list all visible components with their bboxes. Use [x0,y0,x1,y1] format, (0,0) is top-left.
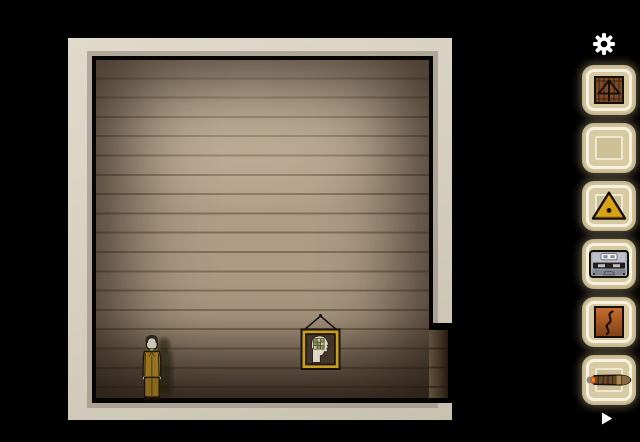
wooden-crate-icon [594,76,624,104]
inventory-slot-cassette[interactable] [582,239,636,289]
head-grid [314,339,325,350]
next-play-arrow[interactable] [601,412,613,425]
passage-opening[interactable] [429,330,448,398]
cigar-band [616,375,621,384]
inventory-slot-smoke-tile[interactable] [582,297,636,347]
inventory-slot-empty[interactable] [582,123,636,173]
inventory-slot-crate[interactable] [582,65,636,115]
character-shoe-left [144,397,151,400]
character-shoe-right [153,397,160,400]
painting-head-profile[interactable] [297,312,344,372]
inventory-slot-cigar[interactable] [582,355,636,405]
character-man-in-suit[interactable] [134,333,184,403]
inventory-slot-warning-triangle[interactable] [582,181,636,231]
cassette-tape-icon [589,250,629,278]
painting-cord [304,316,338,331]
settings-gear-icon[interactable] [592,32,616,56]
painting-nail [319,314,322,317]
cigar-icon [586,372,632,388]
room-view [68,38,452,420]
cigar-ember [592,378,594,383]
smoke-s-tile-icon [594,306,624,338]
warning-triangle-icon [589,189,629,223]
game-screen: { "app": { "name": "room-escape-scene" }… [0,0,640,442]
